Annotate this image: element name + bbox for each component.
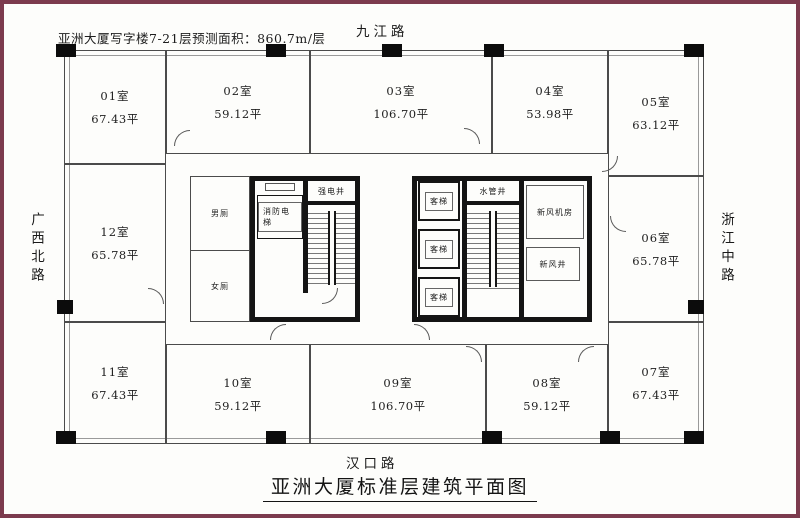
passenger-elevator-1-label: 客梯 xyxy=(425,192,453,211)
column xyxy=(56,44,76,57)
stair-left-rail xyxy=(328,211,336,285)
room-07-area: 67.43平 xyxy=(632,387,679,403)
room-11-area: 67.43平 xyxy=(91,387,138,403)
column xyxy=(600,431,620,444)
column xyxy=(57,300,73,314)
room-12-area: 65.78平 xyxy=(91,247,138,263)
road-label-east: 浙江中路 xyxy=(716,212,736,286)
room-08-number: 08室 xyxy=(532,375,561,391)
room-10: 10室 59.12平 xyxy=(166,344,310,444)
room-02-area: 59.12平 xyxy=(214,106,261,122)
room-03-number: 03室 xyxy=(386,83,415,99)
toilet-block: 男厕 女厕 xyxy=(190,176,250,322)
room-10-area: 59.12平 xyxy=(214,398,261,414)
passenger-elevator-2: 客梯 xyxy=(418,229,460,269)
column xyxy=(482,431,502,444)
fresh-air-plant-room: 新风机房 xyxy=(526,185,584,239)
room-02-number: 02室 xyxy=(223,83,252,99)
mens-toilet: 男厕 xyxy=(191,177,249,251)
room-08-area: 59.12平 xyxy=(523,398,570,414)
fire-elevator-label: 消防电梯 xyxy=(258,202,302,232)
room-09-area: 106.70平 xyxy=(370,398,425,414)
room-06-number: 06室 xyxy=(641,230,670,246)
water-pipe-shaft: 水管井 xyxy=(467,181,519,205)
column xyxy=(266,44,286,57)
room-11-number: 11室 xyxy=(100,364,129,380)
road-label-west: 广西北路 xyxy=(26,212,46,286)
room-05-number: 05室 xyxy=(641,94,670,110)
column xyxy=(688,300,704,314)
elevator-counterweight xyxy=(265,183,295,191)
column xyxy=(382,44,402,57)
room-11: 11室 67.43平 xyxy=(64,322,166,444)
room-01-area: 67.43平 xyxy=(91,111,138,127)
room-09-number: 09室 xyxy=(383,375,412,391)
stair-left xyxy=(308,209,355,287)
title-row: 亚洲大厦标准层建筑平面图 xyxy=(4,472,796,499)
room-01: 01室 67.43平 xyxy=(64,50,166,164)
stair-right-rail xyxy=(489,211,497,287)
core-left: 消防电梯 强电井 xyxy=(250,176,360,322)
plan-title: 亚洲大厦标准层建筑平面图 xyxy=(263,476,537,502)
floor-plan-page: 亚洲大厦写字楼7-21层预测面积：860.7m/层 九江路 汉口路 广西北路 浙… xyxy=(0,0,800,518)
column xyxy=(684,431,704,444)
road-label-south: 汉口路 xyxy=(346,452,399,472)
room-01-number: 01室 xyxy=(100,88,129,104)
womens-toilet: 女厕 xyxy=(191,251,249,322)
core-right-divider-wall-2 xyxy=(519,181,524,317)
fresh-air-shaft: 新风井 xyxy=(526,247,580,281)
room-07: 07室 67.43平 xyxy=(608,322,704,444)
column xyxy=(56,431,76,444)
room-04-area: 53.98平 xyxy=(526,106,573,122)
stair-right xyxy=(467,209,519,289)
fire-elevator: 消防电梯 xyxy=(257,195,303,239)
passenger-elevator-3: 客梯 xyxy=(418,277,460,317)
passenger-elevator-1: 客梯 xyxy=(418,181,460,221)
core-right: 客梯 客梯 客梯 水管井 新风机房 新风井 xyxy=(412,176,592,322)
passenger-elevator-3-label: 客梯 xyxy=(425,288,453,307)
road-label-north: 九江路 xyxy=(356,20,409,40)
column xyxy=(684,44,704,57)
room-09: 09室 106.70平 xyxy=(310,344,486,444)
room-05: 05室 63.12平 xyxy=(608,50,704,176)
column xyxy=(266,431,286,444)
room-12-number: 12室 xyxy=(100,224,129,240)
passenger-elevator-2-label: 客梯 xyxy=(425,240,453,259)
room-05-area: 63.12平 xyxy=(632,117,679,133)
room-06-area: 65.78平 xyxy=(632,253,679,269)
room-10-number: 10室 xyxy=(223,375,252,391)
room-04-number: 04室 xyxy=(535,83,564,99)
strong-electric-shaft: 强电井 xyxy=(308,181,355,205)
room-07-number: 07室 xyxy=(641,364,670,380)
room-03-area: 106.70平 xyxy=(373,106,428,122)
column xyxy=(484,44,504,57)
room-04: 04室 53.98平 xyxy=(492,50,608,154)
